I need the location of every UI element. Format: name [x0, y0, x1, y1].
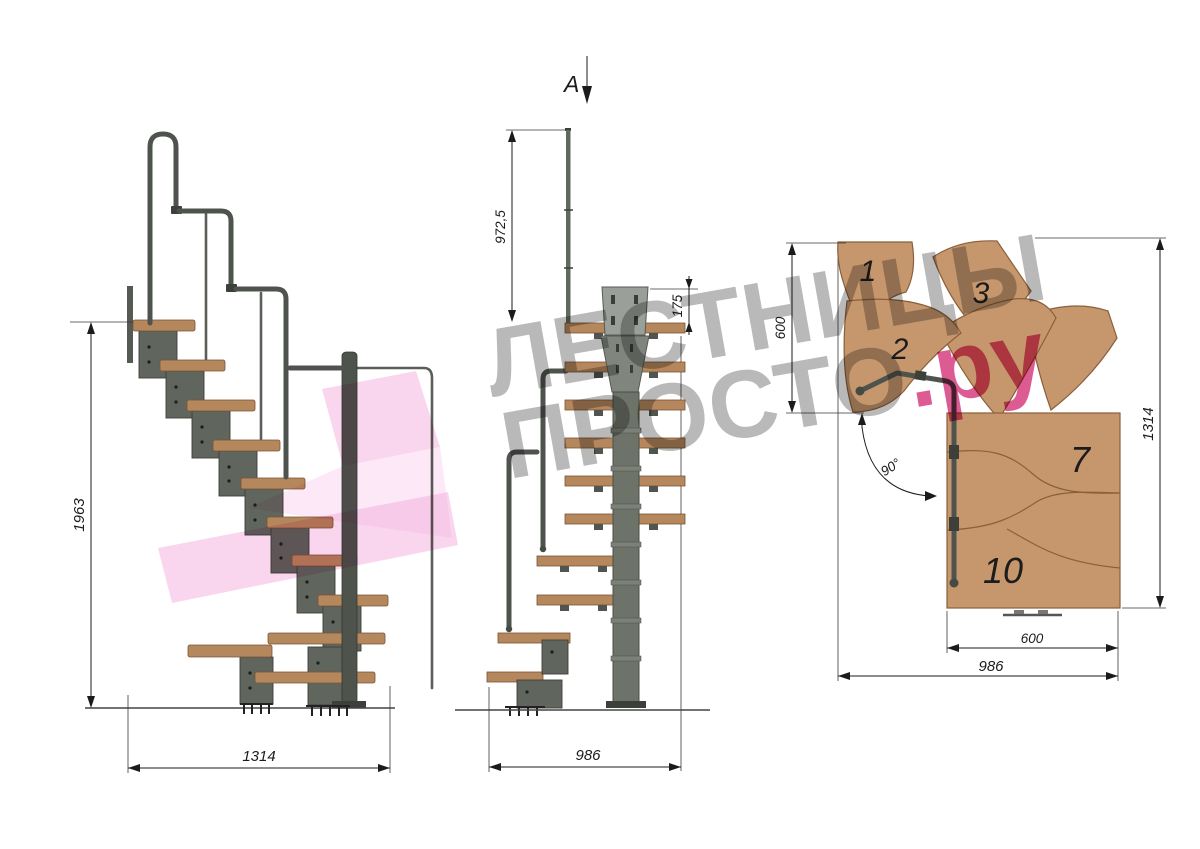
dimension-rail-height: 972,5 [493, 130, 566, 322]
section-label: А [562, 71, 579, 97]
plan-width-label: 986 [978, 658, 1004, 675]
tread-number-2: 2 [891, 333, 909, 366]
side-width-label: 1314 [242, 748, 275, 765]
tread-number-7: 7 [1070, 439, 1092, 480]
side-handrail [150, 134, 342, 477]
dimension-plan-width: 986 [838, 658, 1118, 680]
wall-bracket [127, 286, 133, 363]
rail-height-label: 972,5 [493, 210, 508, 244]
plan-depth-label: 1314 [1140, 407, 1157, 440]
tread-number-1: 1 [860, 255, 877, 288]
plan-lower-flight [947, 413, 1120, 608]
newel-post [342, 352, 357, 704]
tread-number-10: 10 [983, 550, 1023, 591]
front-width-label: 986 [575, 747, 601, 764]
front-rail-post [564, 128, 573, 323]
staircase-drawing-canvas: 1963 1314 А [0, 0, 1200, 849]
side-elevation-view: 1963 1314 [70, 134, 432, 773]
central-column [601, 287, 649, 708]
tread-number-3: 3 [973, 277, 990, 310]
flight-width-label: 600 [1021, 631, 1044, 646]
front-elevation-view: А [455, 56, 710, 772]
angle-annotation: 90° [858, 413, 937, 501]
front-handrails [506, 371, 566, 632]
technical-drawing: 1963 1314 А [0, 0, 1200, 849]
dimension-flight-width: 600 [947, 611, 1118, 681]
floor-plate-symbol [1003, 610, 1062, 615]
plan-view: 1 2 3 7 10 600 [773, 238, 1166, 681]
side-anchor-bolts [240, 704, 350, 716]
dimension-side-height: 1963 [70, 322, 133, 708]
front-treads [487, 323, 685, 682]
landing-depth-label: 600 [773, 316, 788, 339]
side-height-label: 1963 [71, 498, 88, 532]
section-mark: А [562, 56, 592, 104]
plate-height-label: 175 [670, 294, 685, 317]
